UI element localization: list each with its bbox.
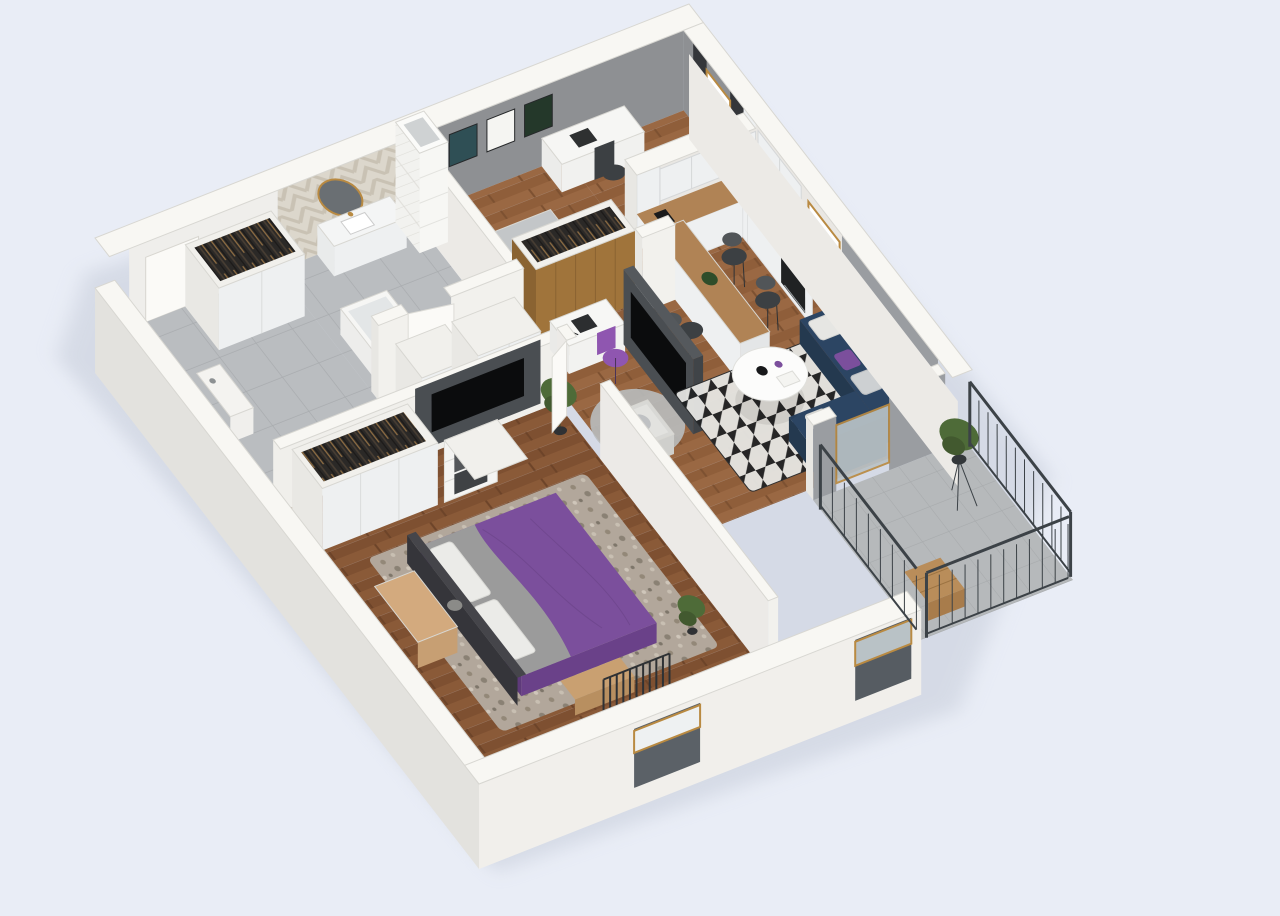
floorplan-screenshot bbox=[0, 0, 1280, 916]
floorplan-3d-render bbox=[0, 0, 1280, 916]
